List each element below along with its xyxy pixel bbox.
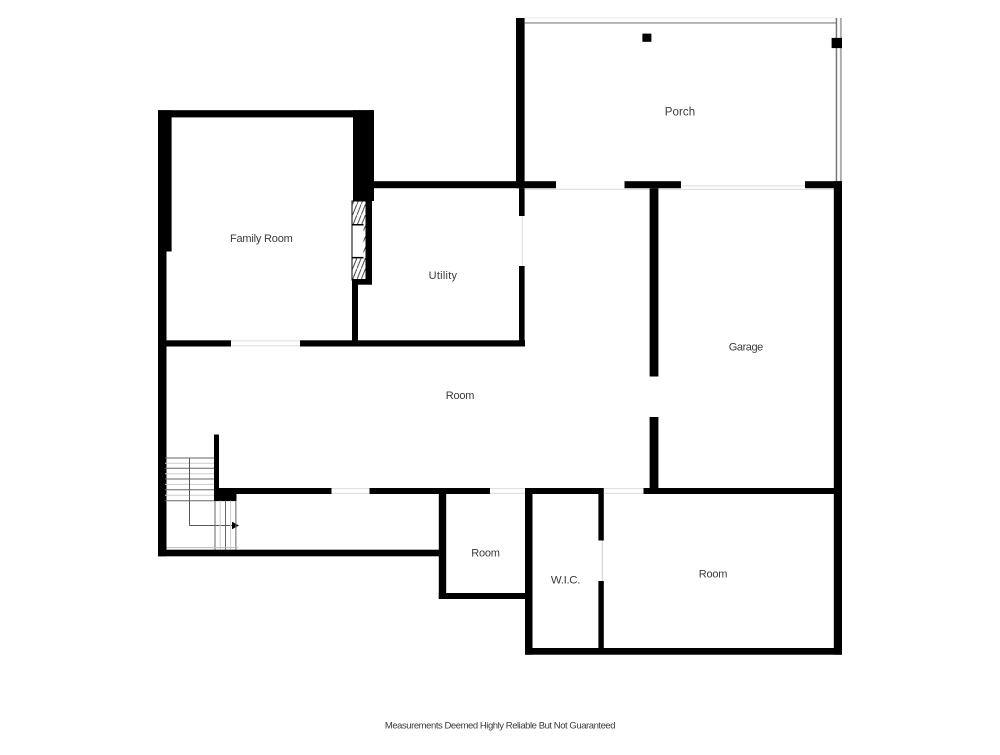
svg-text:Garage: Garage [729,341,763,353]
svg-text:Measurements Deemed Highly Rel: Measurements Deemed Highly Reliable But … [385,721,615,732]
svg-text:Room: Room [446,390,475,402]
svg-text:Family Room: Family Room [230,233,293,245]
svg-text:Porch: Porch [665,107,696,119]
svg-text:Room: Room [471,548,500,560]
svg-text:W.I.C.: W.I.C. [551,574,580,586]
svg-text:Room: Room [699,568,728,580]
svg-text:Utility: Utility [429,270,458,282]
